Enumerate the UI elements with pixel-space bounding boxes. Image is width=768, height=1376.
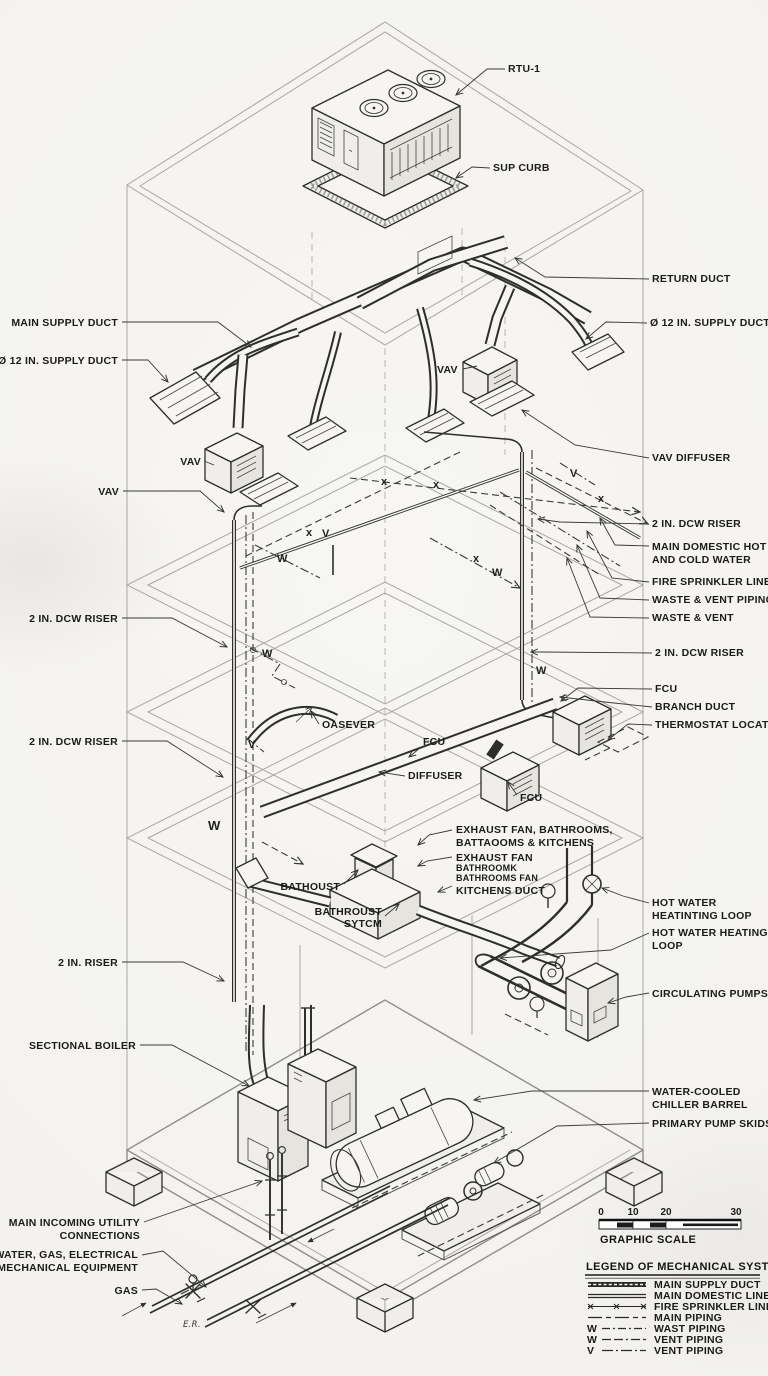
label-supply-12-left: Ø 12 IN. SUPPLY DUCT <box>0 355 118 367</box>
marker-w: W <box>277 553 288 565</box>
label-rtu: RTU-1 <box>508 63 540 75</box>
label-utility-1: MAIN INCOMING UTILITY <box>9 1217 140 1229</box>
label-circulating-pumps: CIRCULATING PUMPS <box>652 988 768 1000</box>
label-branch-duct: BRANCH DUCT <box>655 701 736 713</box>
supply-ductwork <box>150 236 624 505</box>
marker-w: W <box>208 818 221 833</box>
scale-bar-segment <box>650 1223 666 1228</box>
legend-row-vent-piping-v: V VENT PIPING <box>587 1345 723 1357</box>
label-sectional-boiler: SECTIONAL BOILER <box>29 1040 136 1052</box>
label-bathoust: BATHOUST <box>280 881 340 893</box>
label-dcw-riser-r2: 2 IN. DCW RISER <box>655 647 744 659</box>
label-hw-loop2-2: LOOP <box>652 940 683 952</box>
label-vav-left-2: VAV <box>98 486 119 498</box>
label-exhaust1-1: EXHAUST FAN, BATHROOMS, <box>456 824 613 836</box>
marker-w: W <box>262 648 273 660</box>
label-chiller-1: WATER-COOLED <box>652 1086 741 1098</box>
label-return-duct: RETURN DUCT <box>652 273 731 285</box>
marker-x: x <box>598 493 605 505</box>
scale-bar-segment <box>617 1223 633 1228</box>
label-exhaust1-2: BATTAOOMS & KITCHENS <box>456 837 594 849</box>
scale-tick-0: 0 <box>598 1207 604 1218</box>
graphic-scale: 0 10 20 30 GRAPHIC SCALE <box>598 1207 742 1246</box>
label-vav-diffuser: VAV DIFFUSER <box>652 452 731 464</box>
label-bathroust-2: SYTCM <box>344 918 382 930</box>
label-main-supply-duct: MAIN SUPPLY DUCT <box>11 317 118 329</box>
label-vav-right: VAV <box>437 364 458 376</box>
label-sup-curb: SUP CURB <box>493 162 550 174</box>
label-water-gas-1: WATER, GAS, ELECTRICAL <box>0 1249 138 1261</box>
label-fcu-right: FCU <box>655 683 677 695</box>
scale-bar-segment <box>683 1224 738 1227</box>
scale-tick-20: 20 <box>660 1207 672 1218</box>
label-dcw-riser-l2: 2 IN. DCW RISER <box>29 736 118 748</box>
label-exhaust2-2: BATHROOMK <box>456 863 517 873</box>
axonometric-drawing: RTU-1 SUP CURB RETURN DUCT Ø 12 IN. SUPP… <box>0 0 768 1376</box>
label-hw-loop1-1: HOT WATER <box>652 897 717 909</box>
label-dcw-riser-tr: 2 IN. DCW RISER <box>652 518 741 530</box>
rooftop-unit-rtu <box>303 70 468 228</box>
boiler-unit-2 <box>288 1049 356 1148</box>
label-main-domestic-1: MAIN DOMESTIC HOT <box>652 541 767 553</box>
label-exhaust2-3: BATHROOMS FAN <box>456 873 538 883</box>
label-kitchens-duct: KITCHENS DUCT <box>456 885 545 897</box>
label-fire-sprinkler: FIRE SPRINKLER LINES <box>652 576 768 588</box>
scale-tick-30: 30 <box>730 1207 742 1218</box>
scale-caption: GRAPHIC SCALE <box>600 1234 696 1246</box>
label-dcw-riser-l1: 2 IN. DCW RISER <box>29 613 118 625</box>
legend-title: LEGEND OF MECHANICAL SYSTEMS <box>586 1261 768 1273</box>
label-oasever: OASEVER <box>322 719 375 731</box>
label-fcu-mid: FCU <box>423 736 445 748</box>
legend-prefix: V <box>587 1345 594 1357</box>
legend-label: VENT PIPING <box>654 1345 723 1357</box>
mechanical-systems-axonometric-sheet: RTU-1 SUP CURB RETURN DUCT Ø 12 IN. SUPP… <box>0 0 768 1376</box>
label-chiller-2: CHILLER BARREL <box>652 1099 748 1111</box>
mechanical-room-equipment <box>122 1005 545 1327</box>
marker-w: W <box>536 665 547 677</box>
label-er: E.R. <box>183 1320 201 1330</box>
label-gas: GAS <box>114 1285 138 1297</box>
marker-v: V <box>570 468 578 480</box>
label-thermostat: THERMOSTAT LOCATION <box>655 719 768 731</box>
scale-tick-10: 10 <box>627 1207 639 1218</box>
marker-v: V <box>322 528 330 540</box>
label-hw-loop2-1: HOT WATER HEATING <box>652 927 768 939</box>
label-riser-2in: 2 IN. RISER <box>58 957 118 969</box>
label-supply-12-right: Ø 12 IN. SUPPLY DUCT <box>650 317 768 329</box>
label-diffuser: DIFFUSER <box>408 770 463 782</box>
marker-x: x <box>433 479 440 491</box>
legend-of-mechanical-systems: LEGEND OF MECHANICAL SYSTEMS MAIN SUPPLY… <box>585 1261 768 1357</box>
label-bathroust-1: BATHROUST <box>315 906 383 918</box>
marker-w: W <box>492 567 503 579</box>
label-waste-vent-piping: WASTE & VENT PIPING <box>652 594 768 606</box>
label-hw-loop1-2: HEATINTING LOOP <box>652 910 752 922</box>
marker-v: V <box>248 739 256 751</box>
label-primary-pumps: PRIMARY PUMP SKIDS <box>652 1118 768 1130</box>
label-vav-left-1: VAV <box>180 456 201 468</box>
label-utility-2: CONNECTIONS <box>60 1230 140 1242</box>
marker-x: x <box>473 553 480 565</box>
label-main-domestic-2: AND COLD WATER <box>652 554 751 566</box>
label-fcu-low: FCU <box>520 792 542 804</box>
marker-x: x <box>381 476 388 488</box>
label-waste-vent: WASTE & VENT <box>652 612 734 624</box>
marker-x: x <box>306 527 313 539</box>
label-water-gas-2: FOR MECHANICAL EQUIPMENT <box>0 1262 138 1274</box>
